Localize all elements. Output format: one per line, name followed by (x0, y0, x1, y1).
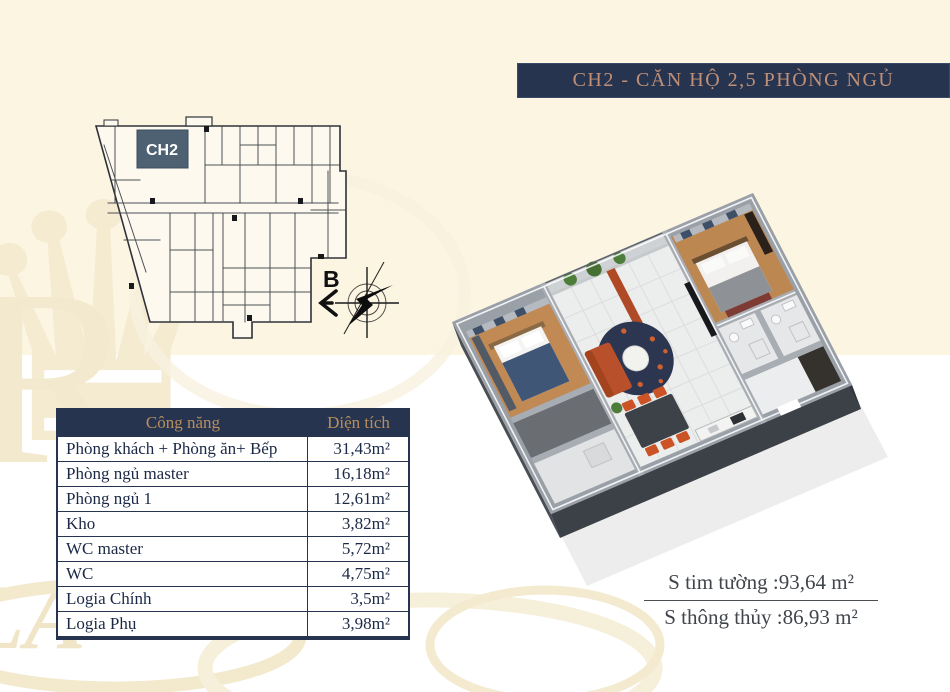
room-area: 4,75m² (308, 564, 408, 584)
header-area: Diện tích (308, 413, 408, 433)
header-function: Công năng (58, 413, 308, 433)
floor-plate-outline (96, 126, 346, 338)
compass-north-label: B (323, 266, 340, 292)
compass: B (321, 262, 399, 338)
room-label: Phòng khách + Phòng ăn+ Bếp (58, 437, 308, 461)
apartment-3d-render (452, 193, 888, 586)
summary-divider (644, 600, 878, 601)
room-area: 31,43m² (308, 439, 408, 459)
floor-plate-bump (104, 120, 118, 126)
table-row: Logia Chính 3,5m² (58, 586, 408, 611)
table-row: Logia Phụ 3,98m² (58, 611, 408, 636)
room-label: WC master (58, 537, 308, 561)
table-row: Phòng ngủ master 16,18m² (58, 461, 408, 486)
west-arrow-icon (321, 291, 336, 315)
title-banner: CH2 - CĂN HỘ 2,5 PHÒNG NGỦ (517, 63, 950, 98)
room-label: WC (58, 562, 308, 586)
highlighted-unit-label: CH2 (146, 142, 178, 159)
title-banner-text: CH2 - CĂN HỘ 2,5 PHÒNG NGỦ (573, 69, 895, 92)
room-label: Logia Chính (58, 587, 308, 611)
room-label: Phòng ngủ master (58, 462, 308, 486)
area-summary: S tim tường :93,64 m² S thông thủy :86,9… (638, 570, 884, 630)
gross-area-text: S tim tường :93,64 m² (638, 570, 884, 598)
compass-rose-icon (335, 262, 399, 338)
table-row: Phòng ngủ 1 12,61m² (58, 486, 408, 511)
table-row: WC master 5,72m² (58, 536, 408, 561)
room-label: Kho (58, 512, 308, 536)
table-row: Kho 3,82m² (58, 511, 408, 536)
net-area-text: S thông thủy :86,93 m² (638, 603, 884, 630)
brochure-page: { "banner": { "title": "CH2 - CĂN HỘ 2,5… (0, 0, 950, 692)
floor-plate-core-notch (186, 117, 212, 126)
area-table: Công năng Diện tích Phòng khách + Phòng … (56, 408, 410, 640)
room-area: 3,5m² (308, 589, 408, 609)
room-label: Logia Phụ (58, 612, 308, 636)
table-row: WC 4,75m² (58, 561, 408, 586)
room-area: 16,18m² (308, 464, 408, 484)
room-label: Phòng ngủ 1 (58, 487, 308, 511)
room-area: 3,82m² (308, 514, 408, 534)
floor-plate-diagram: CH2 (96, 117, 346, 338)
room-area: 3,98m² (308, 614, 408, 634)
area-table-header: Công năng Diện tích (58, 410, 408, 436)
room-area: 12,61m² (308, 489, 408, 509)
room-area: 5,72m² (308, 539, 408, 559)
table-row: Phòng khách + Phòng ăn+ Bếp 31,43m² (58, 436, 408, 461)
